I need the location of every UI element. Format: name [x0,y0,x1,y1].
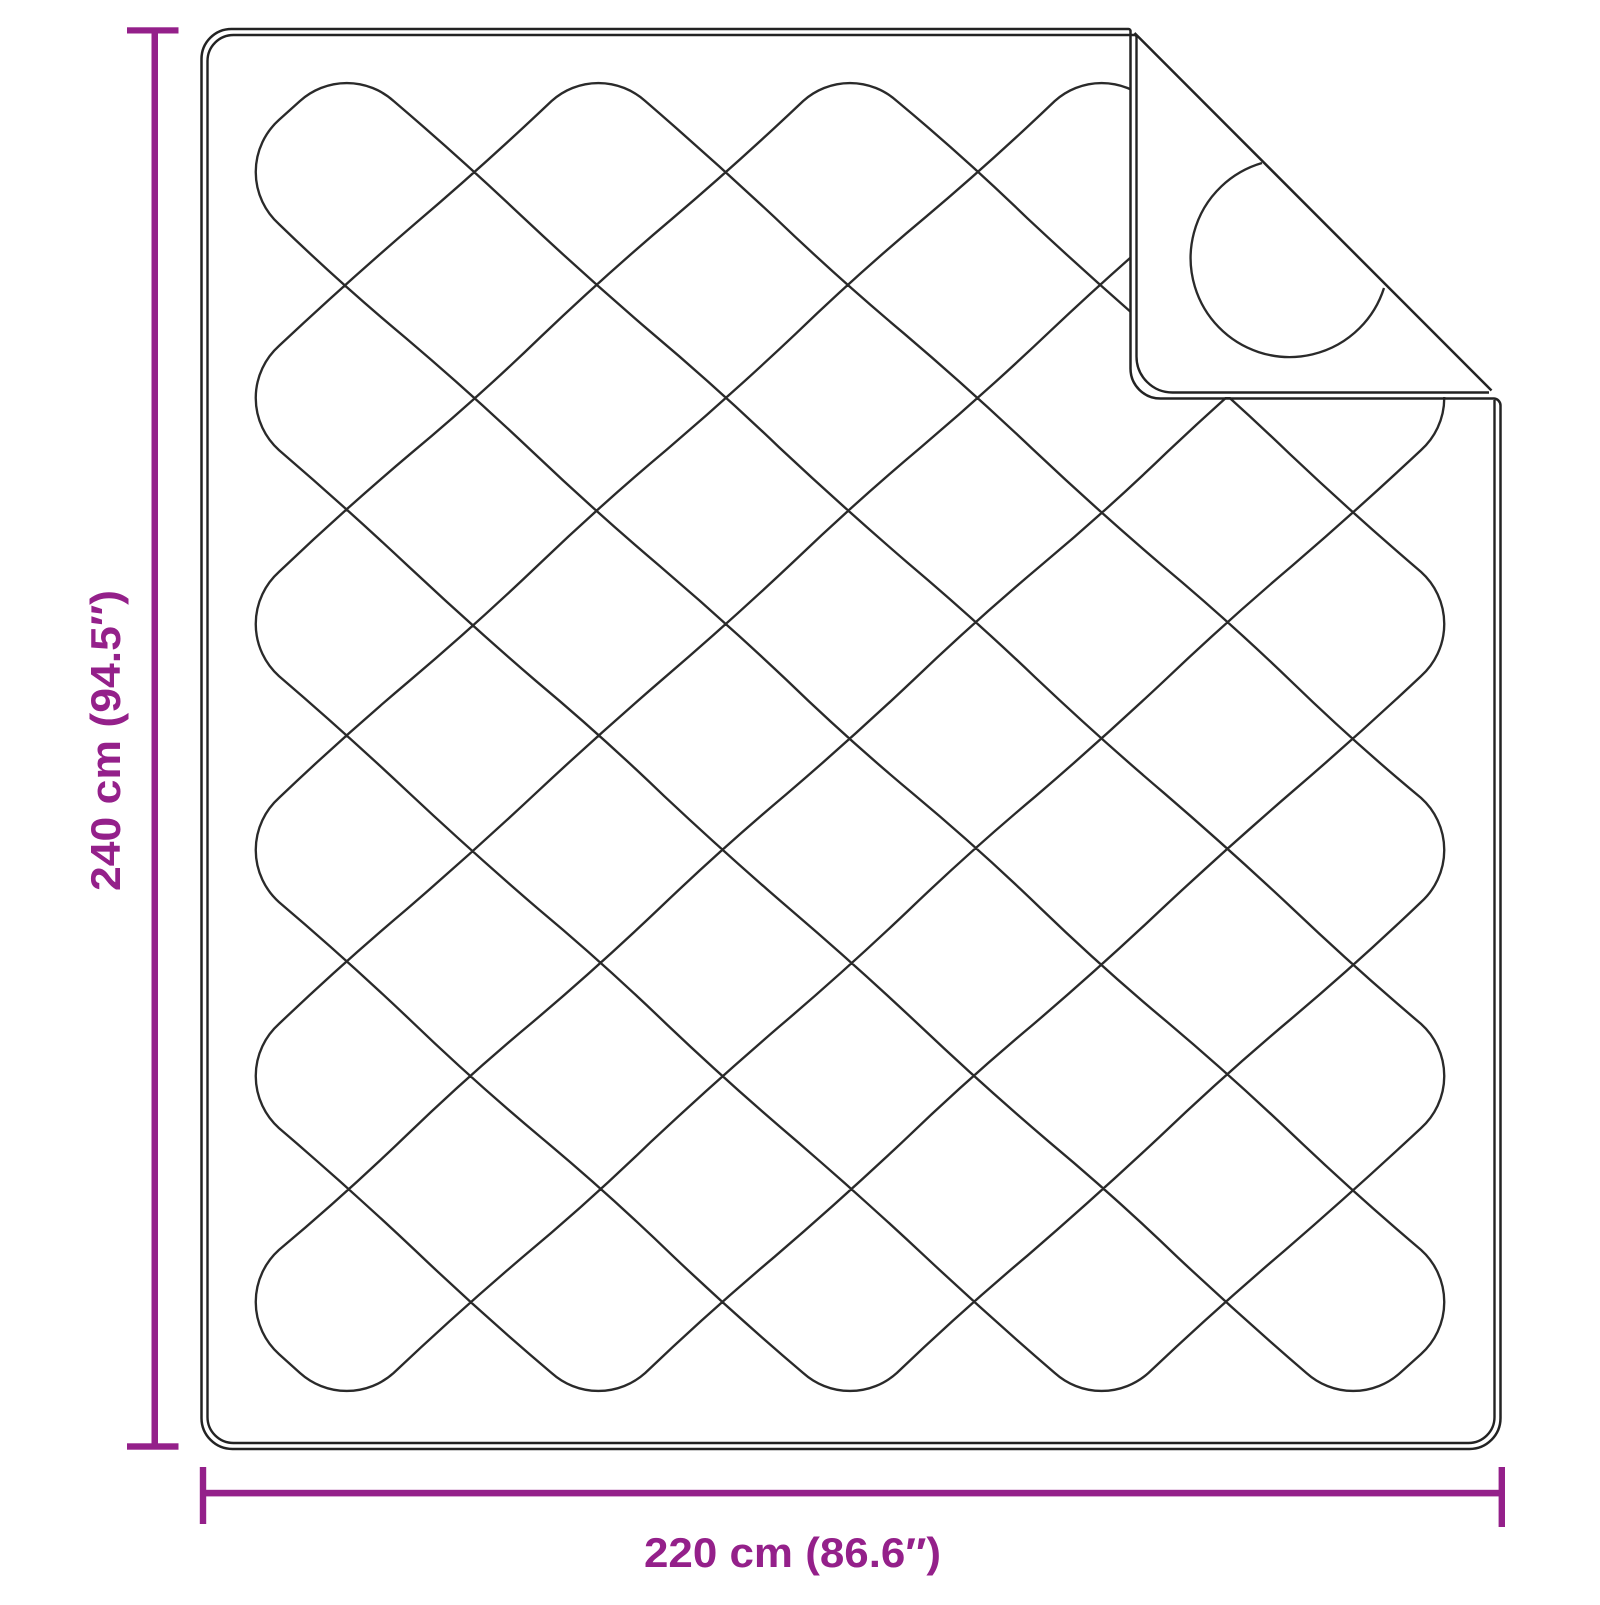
svg-text:220 cm (86.6″): 220 cm (86.6″) [644,1529,941,1576]
svg-text:240 cm (94.5″): 240 cm (94.5″) [82,590,129,891]
